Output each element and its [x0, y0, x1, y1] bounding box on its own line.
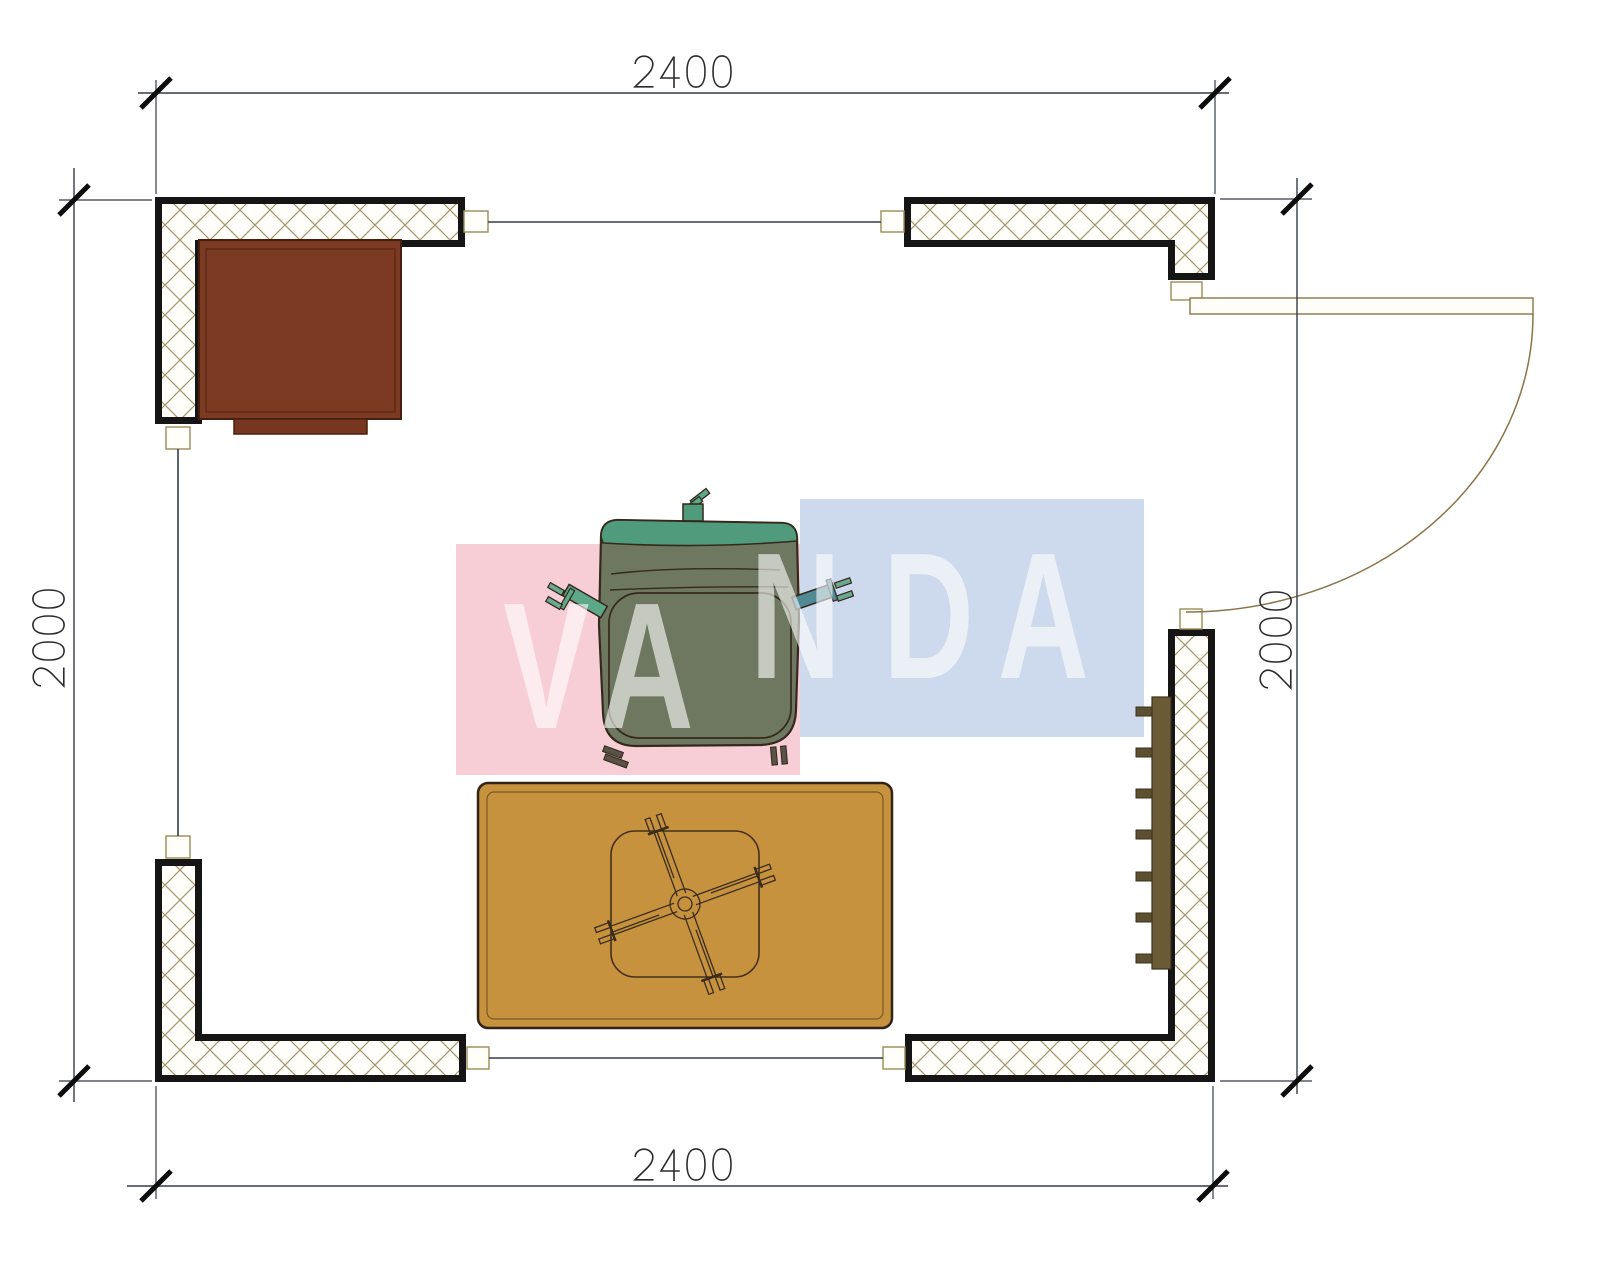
svg-text:NDA: NDA	[750, 515, 1089, 717]
